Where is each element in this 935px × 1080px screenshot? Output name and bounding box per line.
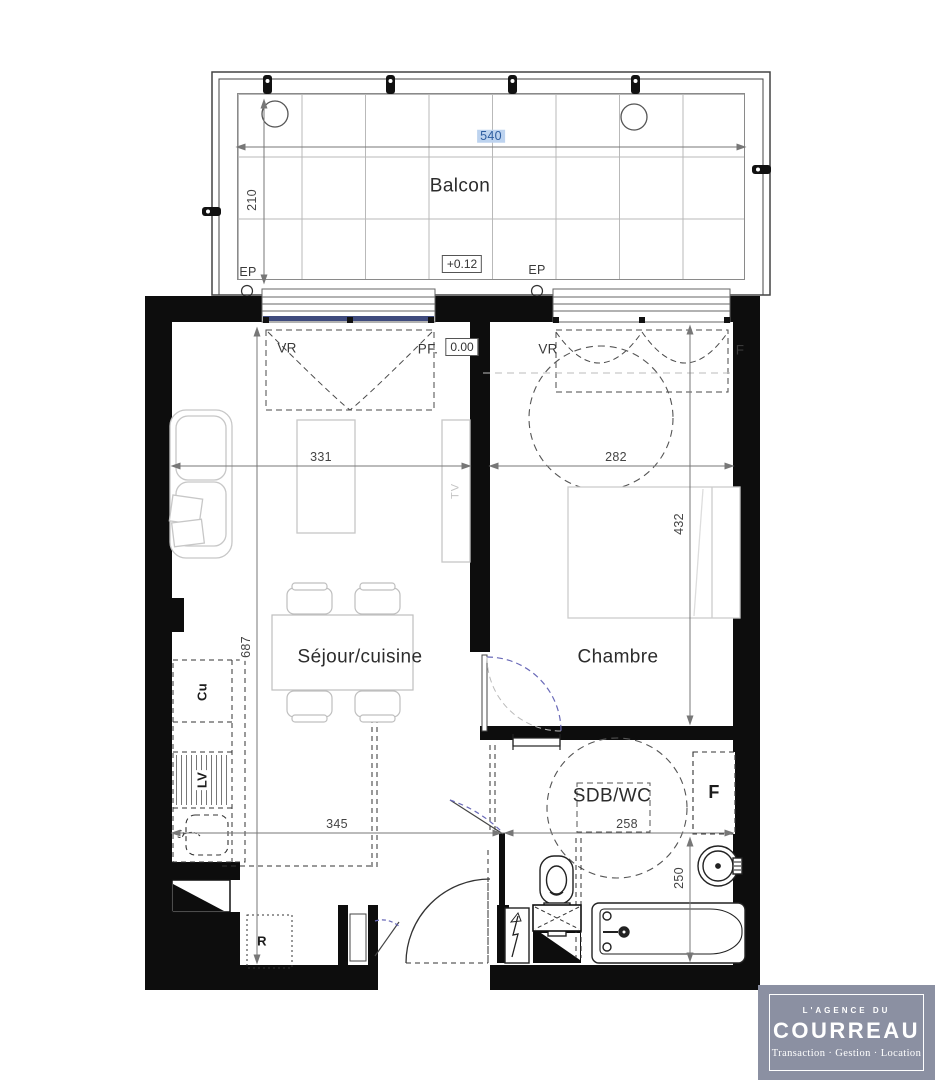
dim-258: 258 xyxy=(613,818,641,831)
dim-282: 282 xyxy=(602,451,630,464)
f-window-label: F xyxy=(736,343,745,357)
window-swings xyxy=(266,330,728,410)
dim-250: 250 xyxy=(673,864,686,892)
walls xyxy=(145,296,760,990)
kitchen-sink xyxy=(177,815,229,855)
logo-frame: L'AGENCE DU COURREAU Transaction · Gesti… xyxy=(769,994,924,1071)
balcony-railing xyxy=(212,72,770,295)
coffee-table xyxy=(297,420,355,533)
dim-331: 331 xyxy=(307,451,335,464)
room-label-sejour: Séjour/cuisine xyxy=(298,648,423,667)
pf-label: PF. xyxy=(418,342,438,356)
bathtub xyxy=(592,903,745,963)
ep-label-right: EP xyxy=(528,264,545,277)
vr-label-left: VR xyxy=(277,341,296,355)
sofa xyxy=(169,410,232,558)
logo-tagline-bottom: Transaction · Gestion · Location xyxy=(772,1048,921,1059)
ep-label-left: EP xyxy=(239,266,256,279)
logo-tagline-top: L'AGENCE DU xyxy=(803,1006,891,1015)
level-balcony: +0.12 xyxy=(442,255,482,273)
duct xyxy=(533,905,581,931)
room-label-sdb: SDB/WC xyxy=(573,787,651,806)
plan-linework xyxy=(0,0,935,1080)
agency-logo: L'AGENCE DU COURREAU Transaction · Gesti… xyxy=(758,985,935,1080)
dim-432: 432 xyxy=(673,510,686,538)
window-balcony-chambre xyxy=(553,289,730,323)
floor-plan: Balcon Séjour/cuisine Chambre SDB/WC 540… xyxy=(0,0,935,1080)
closet-f-label: F xyxy=(708,783,719,801)
dishwasher-label: LV xyxy=(196,770,209,790)
dim-540: 540 xyxy=(477,130,505,143)
chair xyxy=(355,691,400,722)
fridge-label: R xyxy=(257,935,267,948)
vr-label-right: VR xyxy=(538,342,557,356)
dim-687: 687 xyxy=(240,633,253,661)
tv-label: TV xyxy=(451,483,462,499)
chair xyxy=(287,691,332,722)
window-balcony-sejour xyxy=(262,289,435,323)
bed xyxy=(568,487,740,618)
cooktop-label: Cu xyxy=(196,683,209,701)
door-chambre xyxy=(482,655,561,731)
dim-345: 345 xyxy=(323,818,351,831)
chair xyxy=(287,583,332,614)
door-pocket xyxy=(348,910,368,965)
logo-name: COURREAU xyxy=(773,1018,920,1044)
electrical-panel xyxy=(505,908,529,963)
fridge-box xyxy=(247,915,292,968)
room-label-balcon: Balcon xyxy=(430,177,491,196)
shaft-detail xyxy=(172,880,230,912)
level-floor: 0.00 xyxy=(445,338,478,356)
chair xyxy=(355,583,400,614)
door-entrance xyxy=(375,879,490,963)
dim-210: 210 xyxy=(246,186,259,214)
room-label-chambre: Chambre xyxy=(578,648,659,667)
balcony-spots xyxy=(262,101,647,130)
